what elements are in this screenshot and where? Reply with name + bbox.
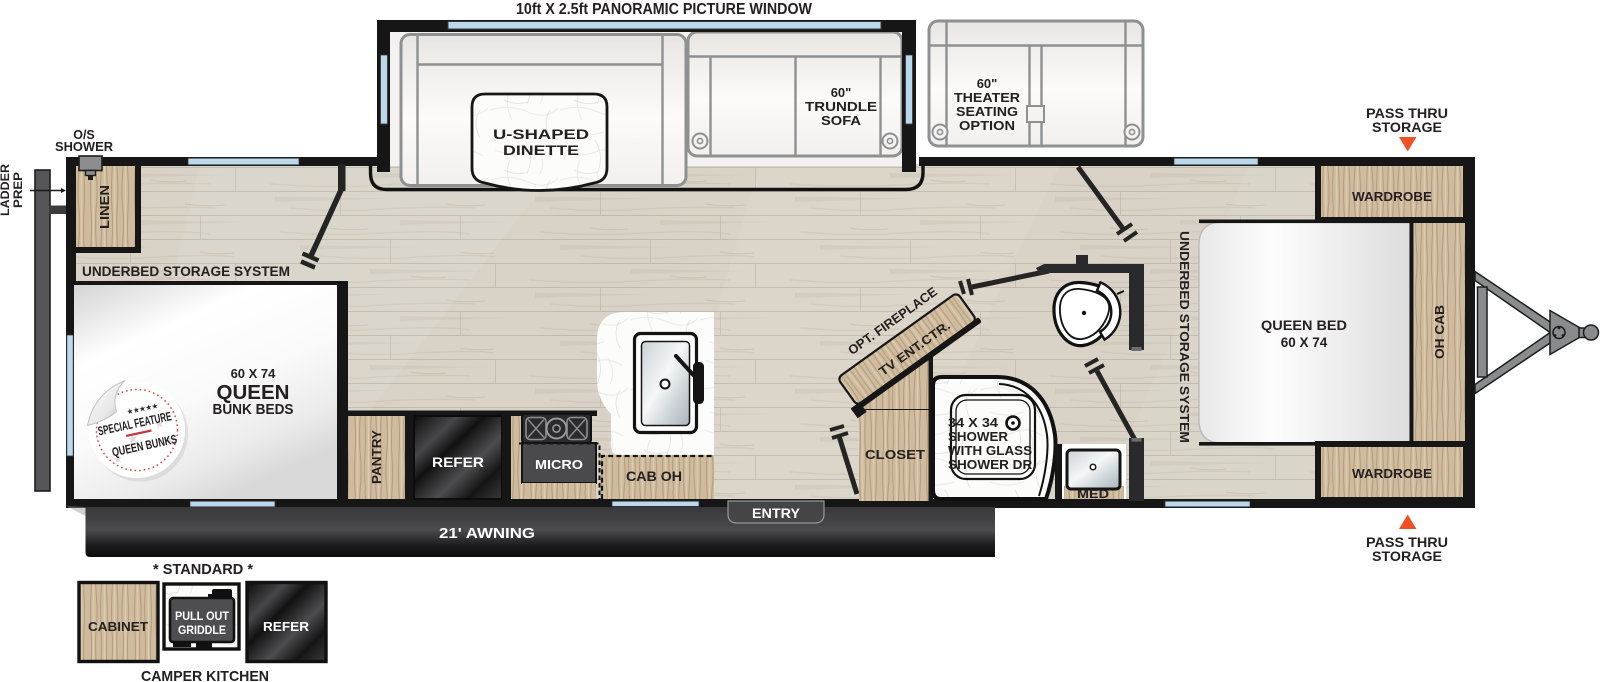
svg-text:BUNK BEDS: BUNK BEDS — [213, 402, 294, 418]
svg-text:OPTION: OPTION — [959, 118, 1015, 133]
svg-text:CLOSET: CLOSET — [865, 448, 925, 462]
svg-text:PASS THRU: PASS THRU — [1366, 106, 1448, 121]
svg-text:THEATER: THEATER — [954, 90, 1021, 105]
svg-text:CABINET: CABINET — [88, 619, 148, 634]
svg-text:SHOWER DR.: SHOWER DR. — [948, 458, 1036, 472]
svg-text:OH CAB: OH CAB — [1432, 305, 1447, 359]
svg-text:STORAGE: STORAGE — [1372, 120, 1442, 135]
svg-text:CAMPER KITCHEN: CAMPER KITCHEN — [141, 668, 269, 682]
svg-text:21' AWNING: 21' AWNING — [439, 526, 535, 542]
svg-text:LINEN: LINEN — [97, 185, 112, 229]
svg-text:* STANDARD *: * STANDARD * — [153, 562, 253, 578]
svg-text:60 X 74: 60 X 74 — [1281, 335, 1328, 350]
svg-text:UNDERBED STORAGE SYSTEM: UNDERBED STORAGE SYSTEM — [82, 264, 290, 279]
svg-text:WARDROBE: WARDROBE — [1352, 466, 1432, 481]
svg-text:SHOWER: SHOWER — [948, 430, 1008, 444]
svg-text:WITH GLASS: WITH GLASS — [948, 444, 1032, 458]
svg-text:REFER: REFER — [263, 619, 310, 634]
svg-text:PREP: PREP — [11, 172, 25, 208]
svg-text:MICRO: MICRO — [535, 457, 583, 472]
svg-text:ENTRY: ENTRY — [752, 506, 800, 521]
svg-text:REFER: REFER — [432, 455, 484, 470]
svg-text:WARDROBE: WARDROBE — [1352, 189, 1432, 204]
svg-text:TRUNDLE: TRUNDLE — [805, 99, 877, 114]
svg-text:PANTRY: PANTRY — [369, 430, 384, 484]
svg-text:SEATING: SEATING — [956, 104, 1018, 119]
svg-text:DINETTE: DINETTE — [503, 143, 579, 158]
svg-text:CAB OH: CAB OH — [626, 469, 682, 484]
svg-text:QUEEN BED: QUEEN BED — [1261, 317, 1347, 333]
svg-text:SHOWER: SHOWER — [55, 140, 113, 154]
svg-text:GRIDDLE: GRIDDLE — [178, 625, 226, 637]
svg-text:60 X 74: 60 X 74 — [231, 366, 277, 381]
svg-text:10ft X 2.5ft PANORAMIC PICTURE: 10ft X 2.5ft PANORAMIC PICTURE WINDOW — [516, 1, 812, 18]
svg-text:60": 60" — [977, 76, 998, 91]
svg-text:U-SHAPED: U-SHAPED — [493, 127, 589, 142]
svg-text:PULL OUT: PULL OUT — [175, 611, 229, 623]
svg-text:34 X 34: 34 X 34 — [948, 416, 998, 430]
svg-text:SOFA: SOFA — [821, 113, 862, 128]
svg-text:60": 60" — [831, 85, 852, 100]
svg-text:PASS THRU: PASS THRU — [1366, 535, 1448, 550]
svg-text:QUEEN: QUEEN — [217, 382, 290, 404]
svg-text:MED: MED — [1077, 489, 1109, 501]
svg-text:STORAGE: STORAGE — [1372, 549, 1442, 564]
svg-text:UNDERBED STORAGE SYSTEM: UNDERBED STORAGE SYSTEM — [1177, 231, 1192, 443]
